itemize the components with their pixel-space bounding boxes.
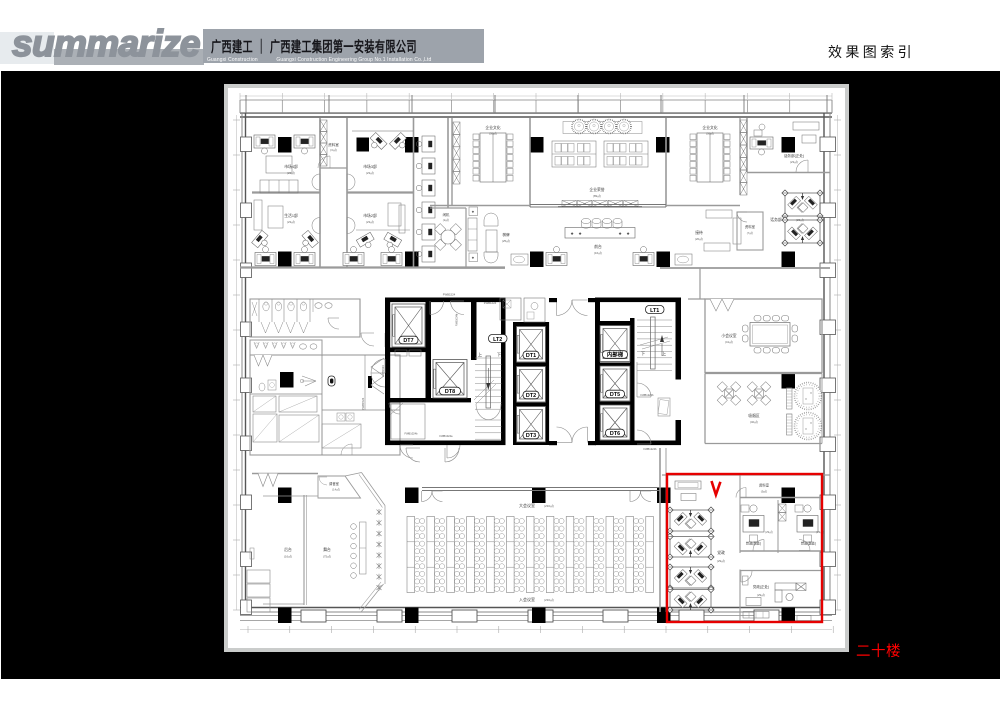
svg-text:(14㎡): (14㎡) [332, 488, 340, 492]
svg-text:企业文化: 企业文化 [485, 125, 500, 130]
svg-text:闲机: 闲机 [443, 212, 450, 217]
svg-text:(23㎡): (23㎡) [796, 217, 804, 222]
svg-text:DT7: DT7 [403, 338, 413, 344]
svg-text:◆: ◆ [627, 232, 630, 236]
svg-text:DT8: DT8 [445, 389, 455, 395]
svg-text:(20㎡): (20㎡) [695, 236, 703, 241]
svg-text:◆: ◆ [472, 256, 475, 260]
svg-text:(23㎡): (23㎡) [366, 170, 374, 175]
svg-text:(75㎡): (75㎡) [323, 554, 331, 559]
svg-text:(29㎡): (29㎡) [717, 558, 725, 563]
svg-text:下: 下 [497, 352, 501, 358]
svg-text:DT6: DT6 [610, 431, 620, 437]
svg-text:(2㎡): (2㎡) [443, 217, 449, 222]
svg-text:内部梯: 内部梯 [607, 351, 624, 359]
svg-text:资料室: 资料室 [745, 224, 756, 229]
svg-text:话务部(正处): 话务部(正处) [784, 153, 804, 158]
svg-text:◆: ◆ [571, 232, 574, 236]
svg-text:FWB1224b: FWB1224b [644, 447, 658, 451]
svg-text:市场3部: 市场3部 [363, 164, 377, 169]
svg-text:党政(副处): 党政(副处) [746, 541, 761, 546]
svg-text:(230㎡): (230㎡) [544, 503, 554, 508]
svg-text:舞台: 舞台 [323, 547, 331, 552]
svg-text:(41㎡): (41㎡) [725, 339, 733, 344]
svg-text:党政: 党政 [717, 550, 725, 555]
svg-text:(29㎡): (29㎡) [757, 592, 765, 597]
svg-text:◆: ◆ [472, 210, 475, 214]
svg-text:吸烟区: 吸烟区 [748, 413, 760, 418]
svg-text:FWB1034b: FWB1034b [456, 313, 459, 326]
svg-text:(40㎡): (40㎡) [750, 419, 758, 424]
svg-text:(23㎡): (23㎡) [287, 219, 295, 224]
svg-text:(36㎡): (36㎡) [706, 131, 714, 136]
svg-text:(23㎡): (23㎡) [366, 219, 374, 224]
svg-text:DT3: DT3 [526, 433, 536, 439]
svg-text:接待: 接待 [695, 230, 703, 235]
svg-text:(7㎡): (7㎡) [747, 230, 753, 235]
svg-text:党政(正处): 党政(正处) [753, 584, 769, 589]
svg-text:企业文化: 企业文化 [702, 125, 717, 130]
svg-text:LT1: LT1 [650, 308, 659, 314]
svg-text:(3㎡): (3㎡) [330, 147, 337, 152]
svg-text:资料室: 资料室 [759, 483, 770, 488]
svg-text:FWB1524: FWB1524 [361, 397, 365, 410]
svg-text:市场4部: 市场4部 [284, 164, 298, 169]
svg-text:FWB1224: FWB1224 [484, 301, 497, 305]
svg-text:上: 上 [662, 350, 666, 356]
svg-text:小会议室: 小会议室 [721, 333, 736, 338]
svg-text:FWB1024b: FWB1024b [405, 432, 419, 436]
svg-text:生活1部: 生活1部 [284, 213, 298, 218]
svg-text:棋牌: 棋牌 [502, 232, 510, 237]
svg-text:(23㎡): (23㎡) [790, 159, 798, 164]
svg-text:◆: ◆ [579, 232, 582, 236]
svg-text:(16㎡): (16㎡) [284, 554, 292, 559]
svg-text:DT1: DT1 [526, 353, 536, 359]
svg-text:(36㎡): (36㎡) [489, 131, 497, 136]
svg-text:资料室: 资料室 [328, 142, 339, 147]
svg-text:(9㎡): (9㎡) [761, 489, 767, 494]
svg-text:FWB1024a: FWB1024a [440, 434, 454, 438]
svg-text:前台: 前台 [594, 244, 602, 249]
svg-text:(230㎡): (230㎡) [544, 597, 554, 602]
svg-text:入会议室: 入会议室 [519, 596, 535, 602]
svg-text:DT5: DT5 [610, 392, 620, 398]
svg-text:(29㎡): (29㎡) [765, 530, 773, 534]
svg-text:大会议室: 大会议室 [519, 502, 535, 508]
svg-text:市场2部: 市场2部 [363, 213, 377, 218]
svg-text:(25㎡): (25㎡) [502, 238, 510, 243]
svg-text:FWB1224b: FWB1224b [641, 393, 655, 397]
svg-text:下: 下 [641, 351, 645, 357]
svg-text:后台: 后台 [284, 547, 292, 552]
svg-text:(16㎡): (16㎡) [594, 250, 602, 255]
svg-text:DT2: DT2 [526, 393, 536, 399]
svg-text:上: 上 [478, 351, 482, 357]
svg-text:企业荣誉: 企业荣誉 [589, 187, 604, 192]
svg-text:LT2: LT2 [493, 337, 502, 343]
svg-text:FWB1524: FWB1524 [443, 293, 456, 297]
svg-text:(89㎡): (89㎡) [593, 193, 601, 198]
svg-text:FWB1524: FWB1524 [382, 365, 385, 377]
svg-text:(23㎡): (23㎡) [287, 170, 295, 175]
svg-text:◆: ◆ [619, 232, 622, 236]
svg-text:话务部: 话务部 [770, 217, 782, 222]
svg-text:调音室: 调音室 [329, 481, 340, 486]
